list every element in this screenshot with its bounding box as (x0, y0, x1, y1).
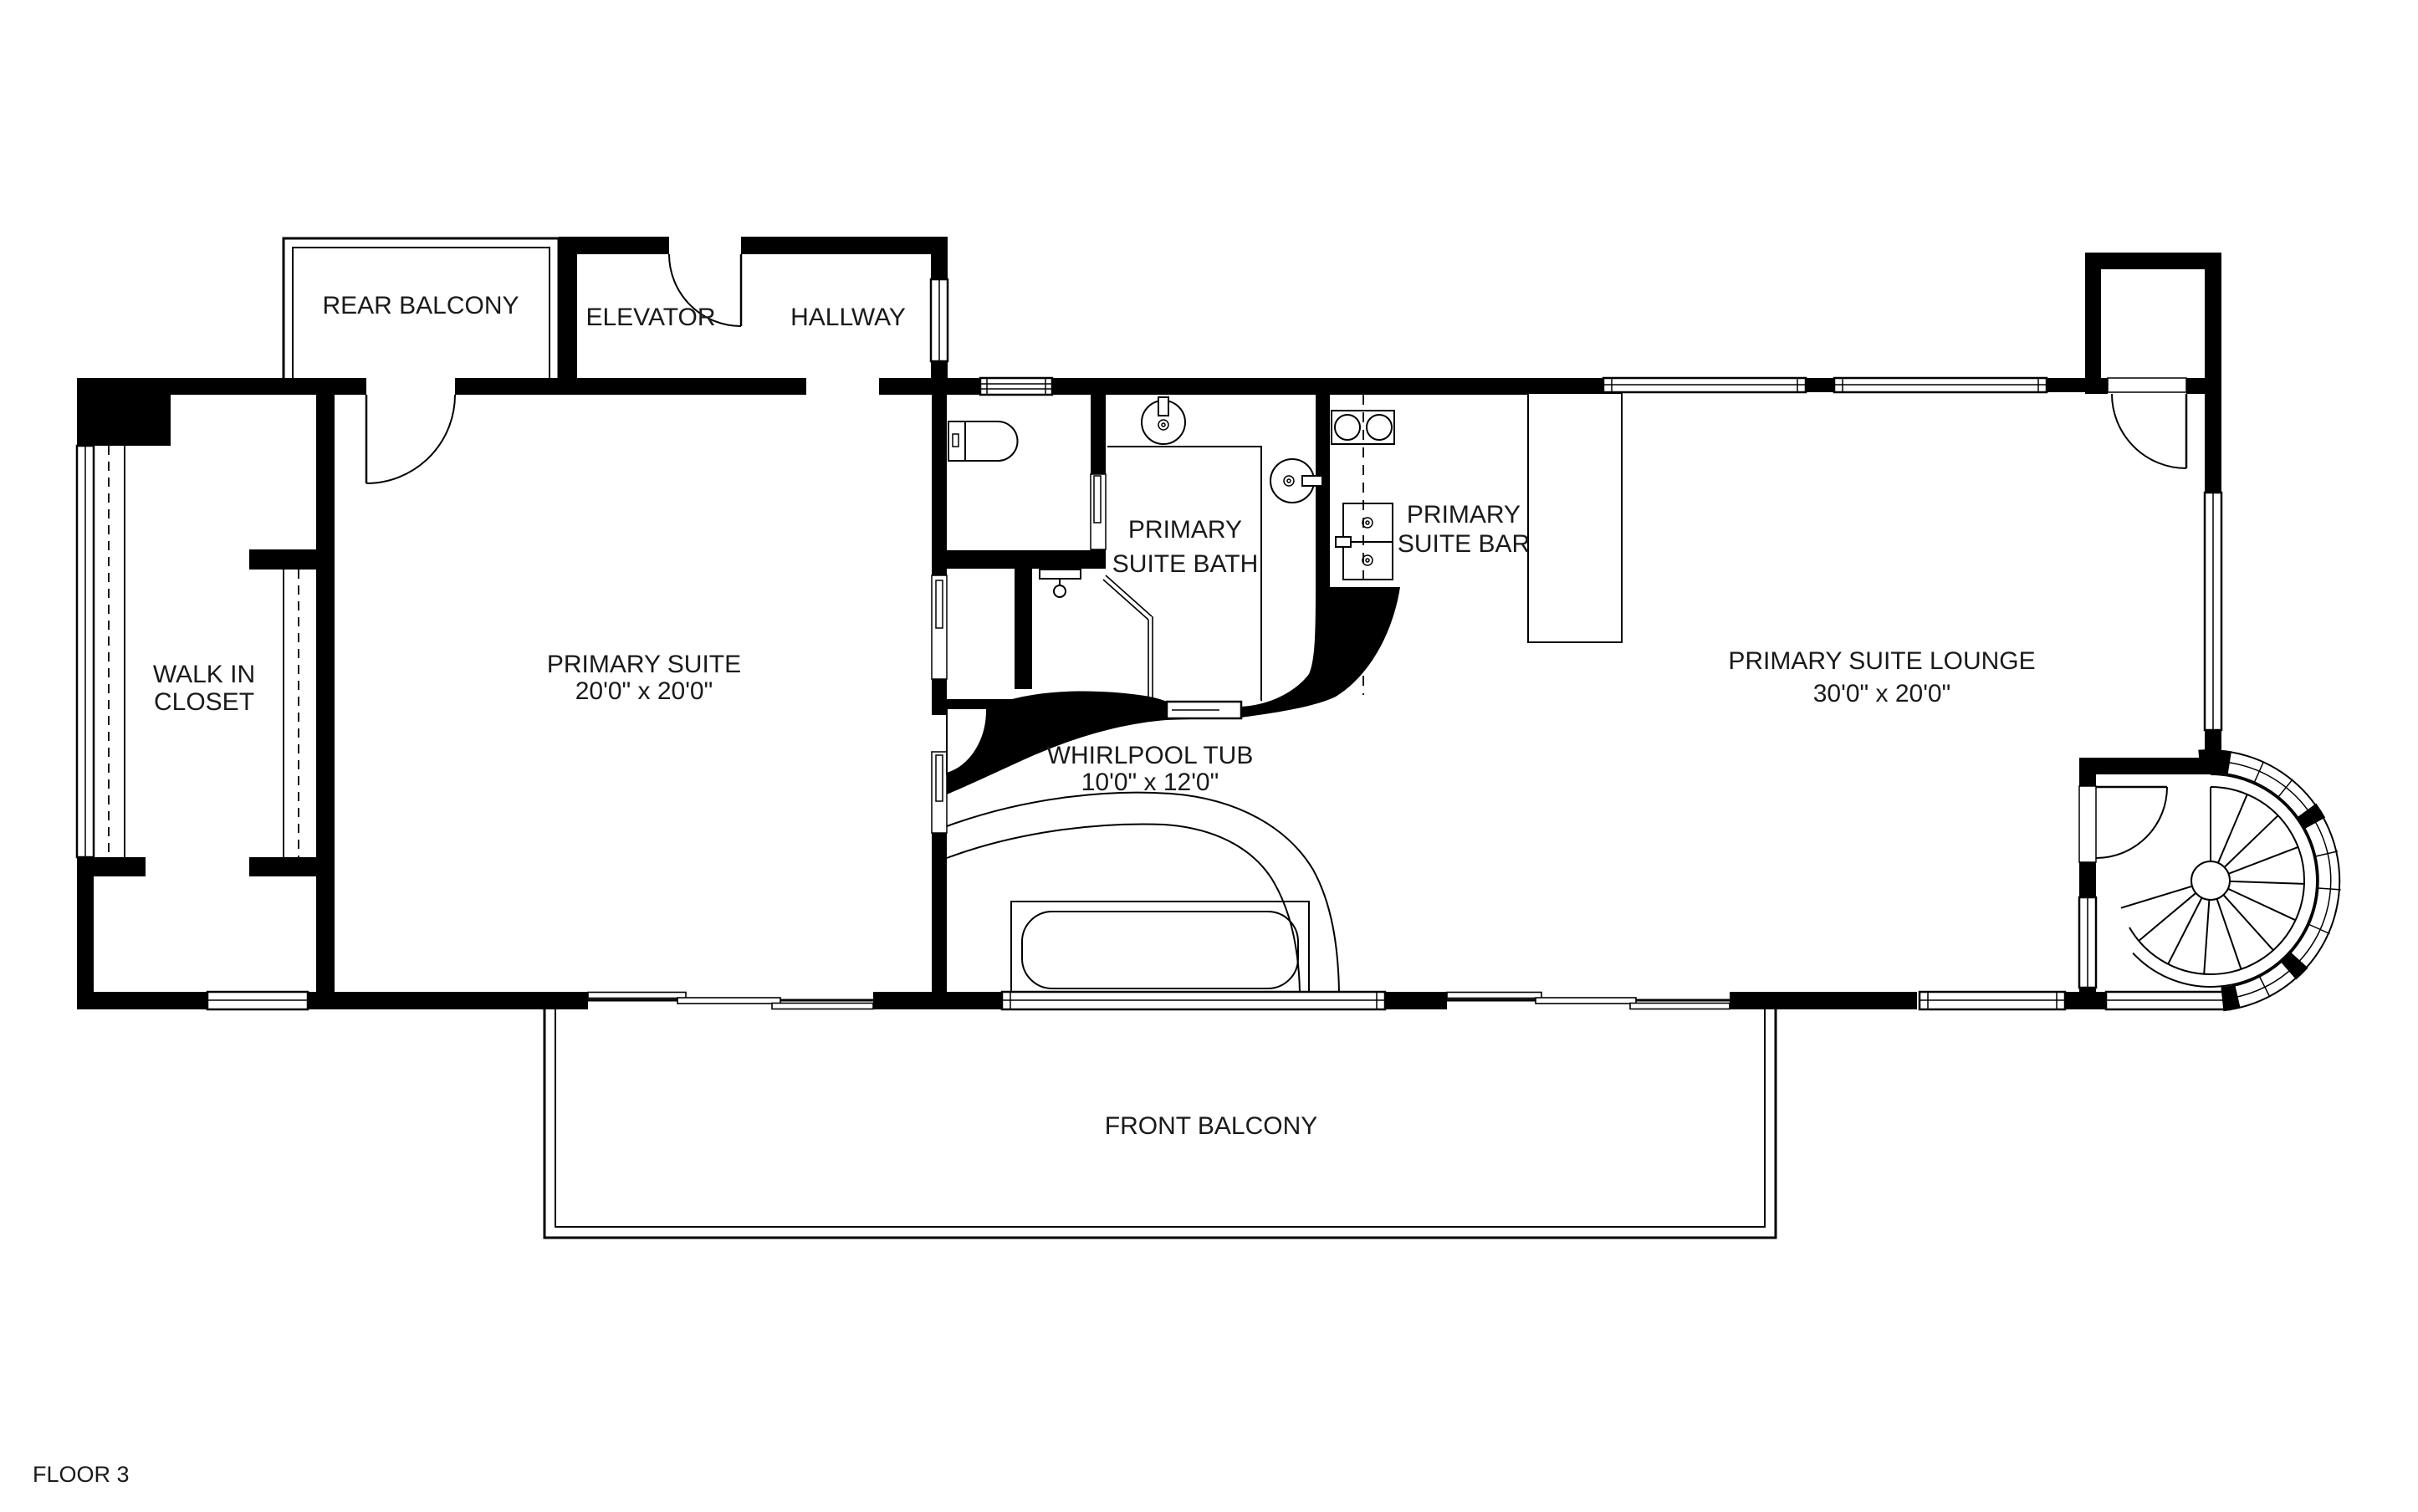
svg-text:HALLWAY: HALLWAY (790, 304, 906, 331)
svg-text:SUITE BAR: SUITE BAR (1398, 530, 1530, 558)
svg-text:PRIMARY: PRIMARY (1128, 516, 1242, 544)
svg-text:REAR BALCONY: REAR BALCONY (322, 292, 519, 319)
svg-text:30'0" x 20'0": 30'0" x 20'0" (1813, 680, 1951, 707)
svg-text:WALK IN: WALK IN (153, 661, 255, 688)
svg-text:WHIRLPOOL TUB: WHIRLPOOL TUB (1047, 742, 1254, 769)
svg-text:CLOSET: CLOSET (154, 688, 254, 716)
svg-text:PRIMARY SUITE LOUNGE: PRIMARY SUITE LOUNGE (1728, 647, 2035, 675)
svg-text:10'0" x 12'0": 10'0" x 12'0" (1081, 769, 1219, 796)
svg-text:SUITE BATH: SUITE BATH (1112, 550, 1258, 578)
svg-text:PRIMARY: PRIMARY (1407, 501, 1521, 529)
svg-text:20'0" x 20'0": 20'0" x 20'0" (575, 677, 713, 705)
svg-text:ELEVATOR: ELEVATOR (585, 304, 715, 331)
svg-text:PRIMARY SUITE: PRIMARY SUITE (547, 651, 741, 678)
svg-text:FRONT BALCONY: FRONT BALCONY (1105, 1112, 1318, 1140)
svg-text:FLOOR 3: FLOOR 3 (33, 1462, 130, 1487)
